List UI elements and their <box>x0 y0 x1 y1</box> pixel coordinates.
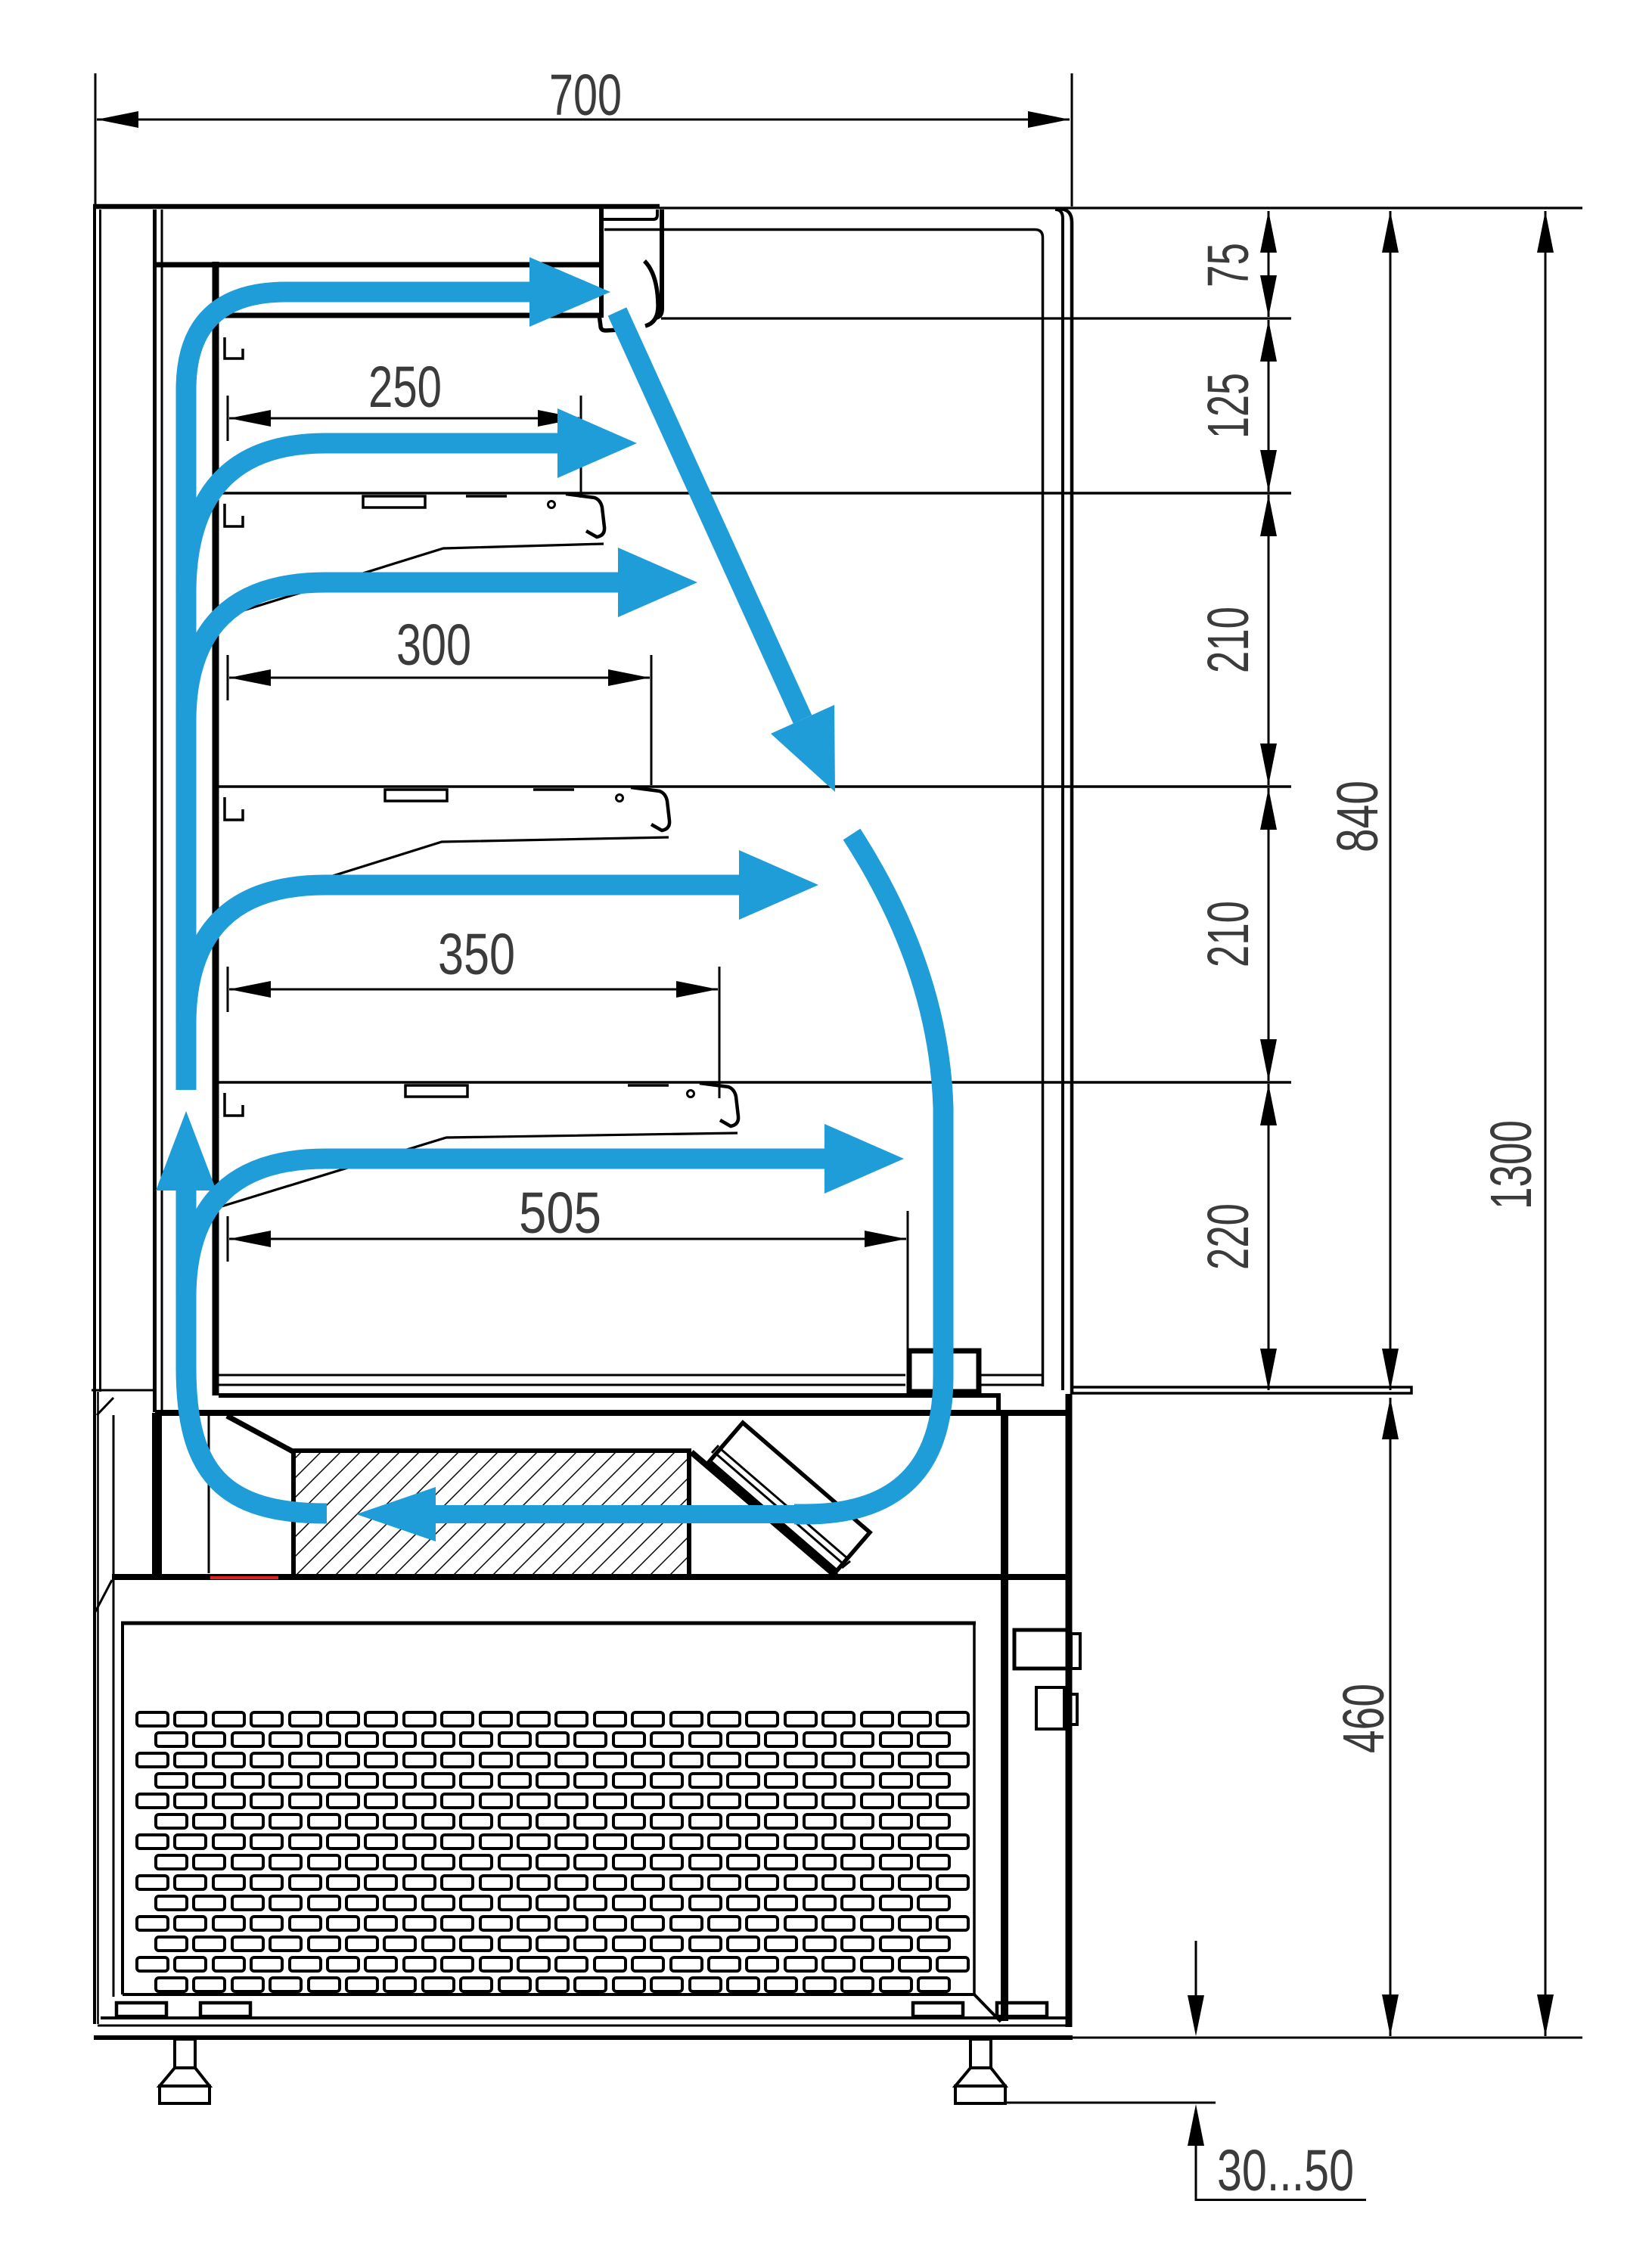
svg-text:75: 75 <box>1196 243 1261 287</box>
svg-text:300: 300 <box>396 613 471 678</box>
svg-text:125: 125 <box>1196 373 1261 439</box>
svg-text:700: 700 <box>549 63 622 128</box>
svg-text:30...50: 30...50 <box>1217 2138 1354 2203</box>
svg-text:210: 210 <box>1196 901 1261 967</box>
svg-text:250: 250 <box>368 355 442 420</box>
svg-text:840: 840 <box>1325 781 1390 852</box>
svg-text:210: 210 <box>1196 607 1261 673</box>
svg-text:350: 350 <box>438 922 515 987</box>
svg-text:220: 220 <box>1196 1203 1261 1270</box>
svg-text:505: 505 <box>519 1181 601 1246</box>
svg-text:460: 460 <box>1331 1684 1396 1753</box>
svg-text:1300: 1300 <box>1479 1120 1544 1209</box>
